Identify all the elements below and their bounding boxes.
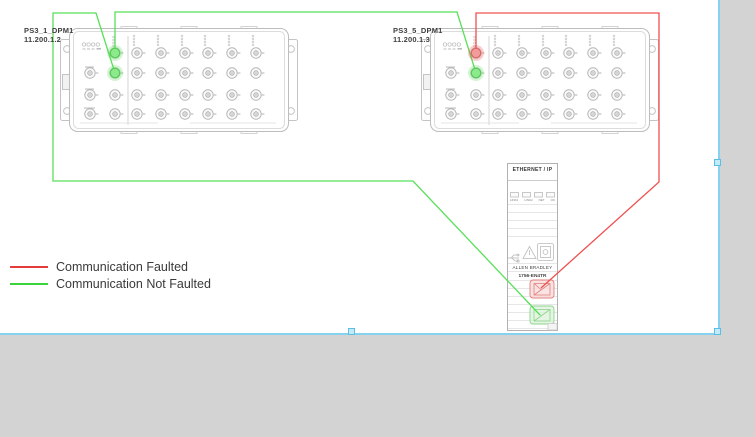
- device1-ip: 11.200.1.2: [24, 35, 74, 44]
- application-window: PS3_1_DPM1 11.200.1.2 PS3_5_DPM1 11.200.…: [0, 0, 755, 437]
- canvas-resize-handle-bottom[interactable]: [348, 328, 355, 335]
- module-header: ETHERNET / IP: [507, 167, 558, 173]
- indicator-link2: LINK2: [524, 198, 532, 202]
- canvas-resize-handle-right[interactable]: [714, 159, 721, 166]
- device1-label: PS3_1_DPM1 11.200.1.2: [24, 26, 74, 44]
- device2-ip: 11.200.1.3: [393, 35, 443, 44]
- device2-label: PS3_5_DPM1 11.200.1.3: [393, 26, 443, 44]
- legend-faulted-label: Communication Faulted: [56, 260, 188, 274]
- indicator-ok: OK: [551, 198, 555, 202]
- indicator-net: NET: [539, 198, 545, 202]
- ethernet-module-1756-en4tr[interactable]: [508, 164, 558, 331]
- device1-name: PS3_1_DPM1: [24, 26, 74, 35]
- device2-name: PS3_5_DPM1: [393, 26, 443, 35]
- legend-faulted-line-swatch: [10, 266, 48, 268]
- canvas-resize-handle-corner[interactable]: [714, 328, 721, 335]
- device-ps3-1-dpm1[interactable]: [61, 27, 298, 134]
- indicator-link1: LINK1: [510, 198, 518, 202]
- legend-item-faulted: Communication Faulted: [10, 258, 211, 275]
- legend-item-not-faulted: Communication Not Faulted: [10, 275, 211, 292]
- legend-not-faulted-label: Communication Not Faulted: [56, 277, 211, 291]
- module-model: 1756-EN4TR: [507, 274, 558, 279]
- module-port-faulted[interactable]: [530, 280, 554, 298]
- module-brand: ALLEN BRADLEY: [507, 265, 558, 270]
- legend: Communication Faulted Communication Not …: [10, 258, 211, 292]
- module-indicator-labels: LINK1 LINK2 NET OK: [507, 198, 558, 202]
- legend-not-faulted-line-swatch: [10, 283, 48, 285]
- diagram-canvas[interactable]: PS3_1_DPM1 11.200.1.2 PS3_5_DPM1 11.200.…: [0, 0, 720, 335]
- device-ps3-5-dpm1[interactable]: [422, 27, 659, 134]
